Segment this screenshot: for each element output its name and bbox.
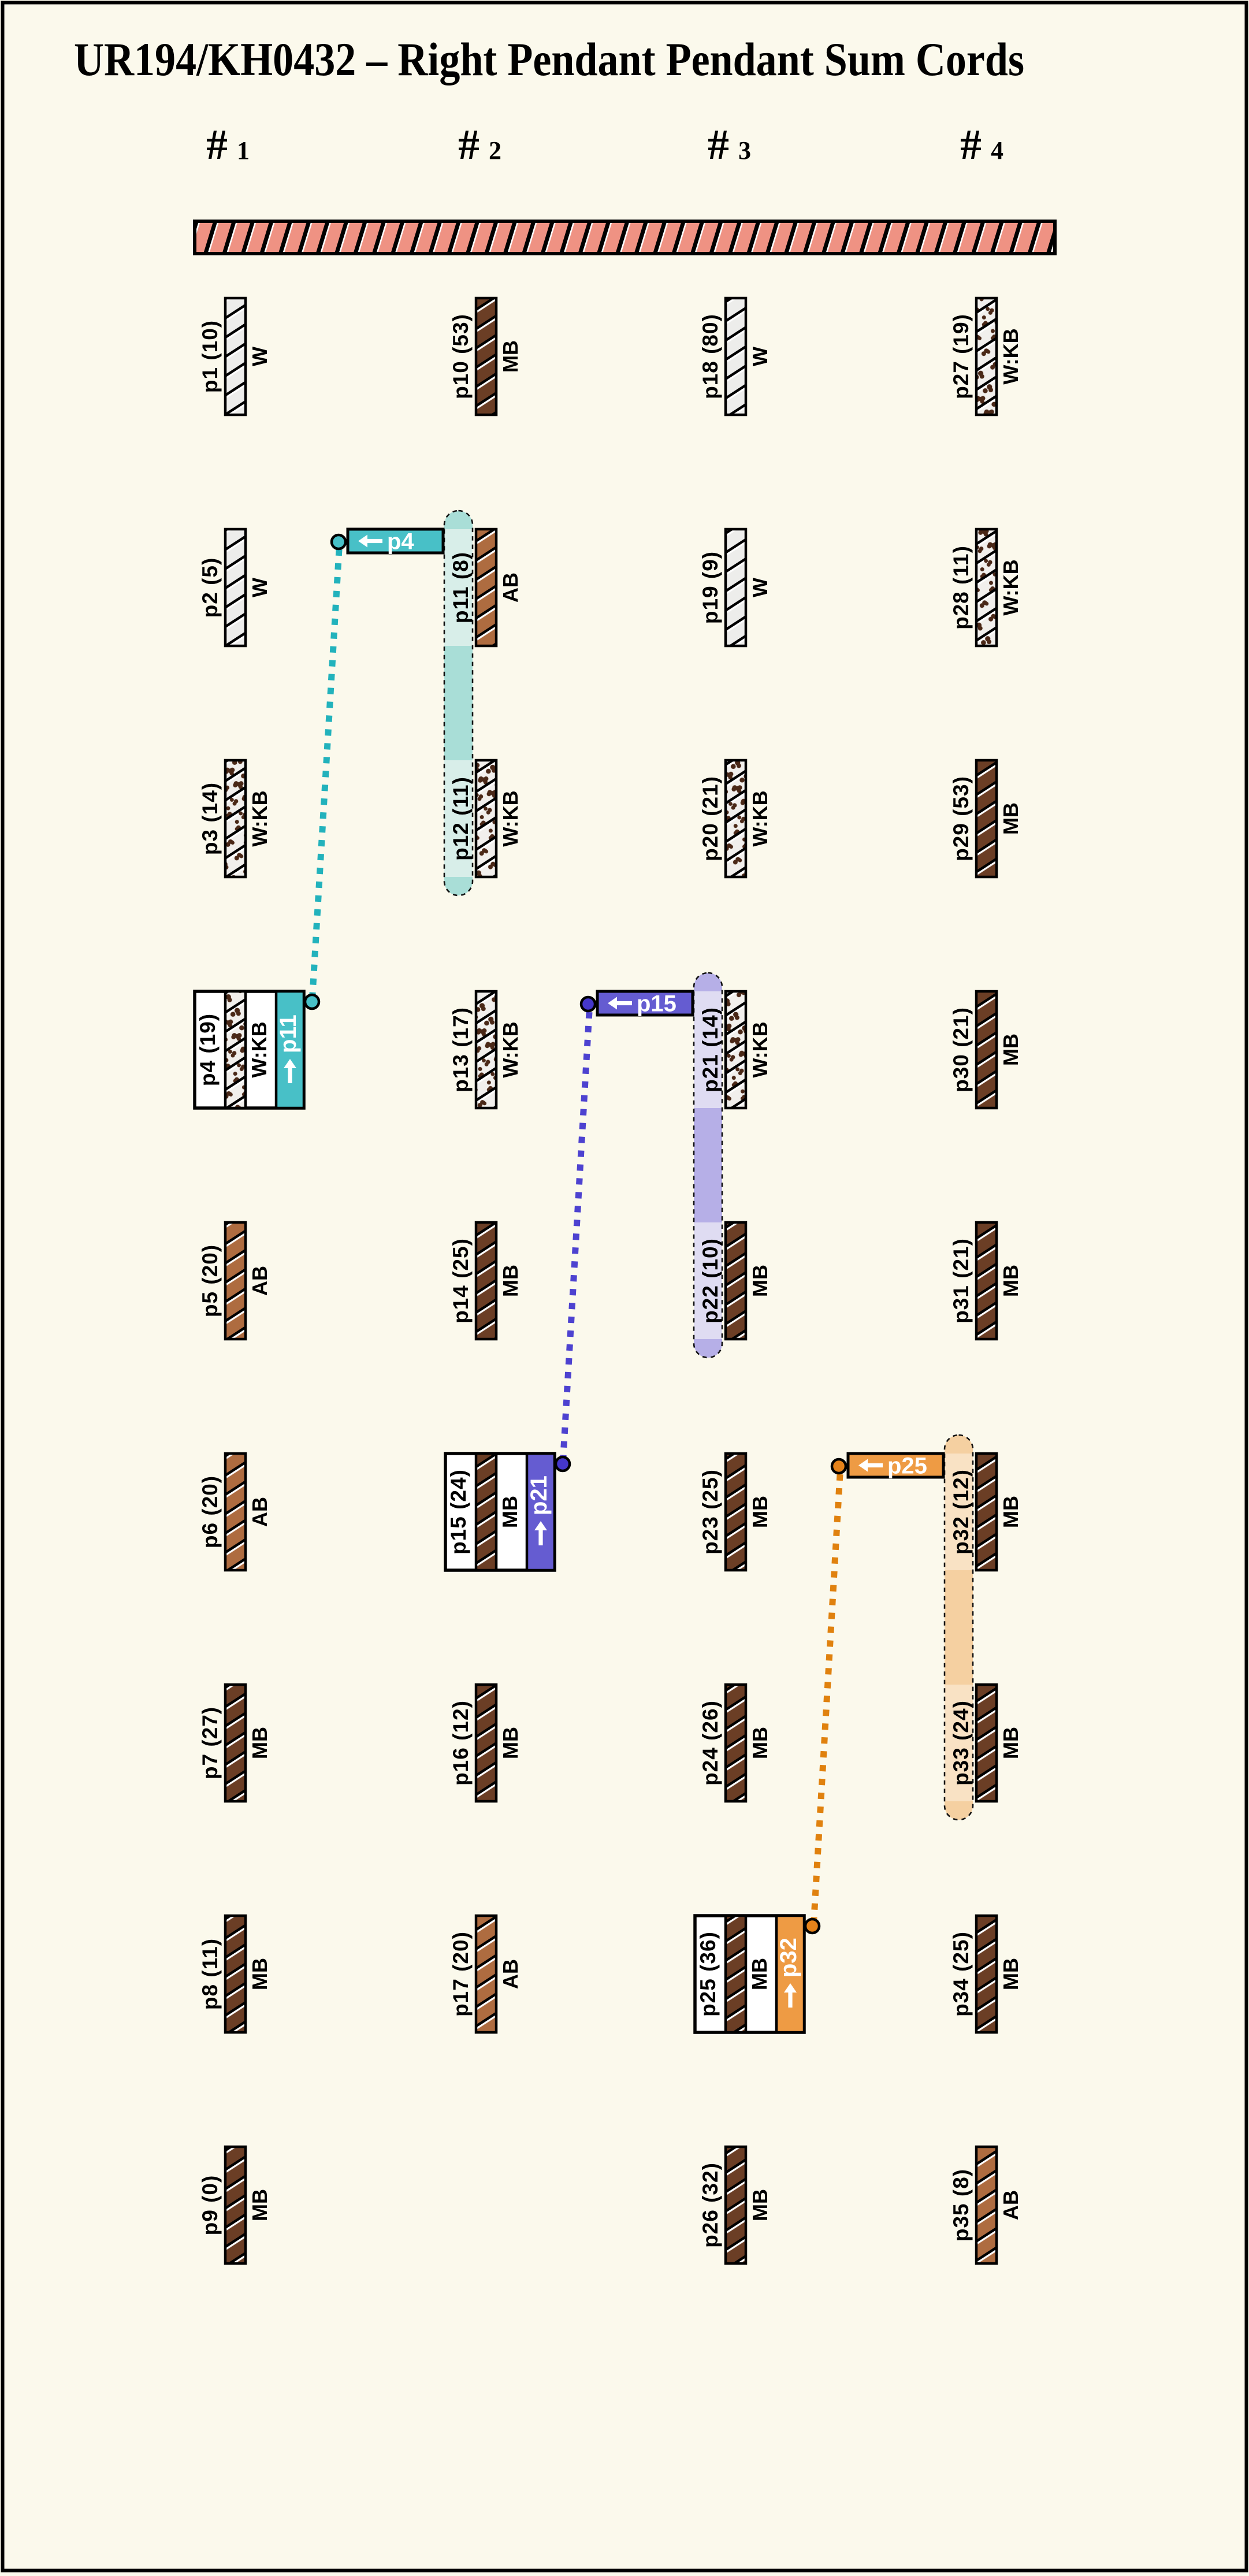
svg-text:p5 (20): p5 (20) [198, 1244, 222, 1317]
svg-text:MB: MB [748, 2189, 772, 2221]
svg-text:UR194/KH0432 – Right Pendant P: UR194/KH0432 – Right Pendant Pendant Sum… [74, 33, 1024, 86]
svg-text:AB: AB [248, 1266, 272, 1296]
svg-text:p10 (53): p10 (53) [449, 314, 473, 399]
svg-text:p11 (8): p11 (8) [449, 552, 473, 623]
svg-text:MB: MB [748, 1265, 772, 1297]
svg-text:p18 (80): p18 (80) [698, 314, 722, 399]
svg-text:MB: MB [248, 1727, 272, 1759]
svg-text:MB: MB [499, 1727, 522, 1759]
svg-text:W:KB: W:KB [499, 1021, 522, 1077]
svg-text:W:KB: W:KB [999, 559, 1023, 615]
svg-text:p1 (10): p1 (10) [198, 320, 222, 393]
svg-text:W:KB: W:KB [748, 790, 772, 846]
svg-text:p3 (14): p3 (14) [198, 782, 222, 855]
svg-text:p25 (36): p25 (36) [696, 1931, 720, 2017]
svg-text:p6 (20): p6 (20) [198, 1475, 222, 1548]
svg-text:p2 (5): p2 (5) [198, 557, 222, 618]
svg-text:p35 (8): p35 (8) [949, 2169, 973, 2242]
svg-text:p30 (21): p30 (21) [949, 1007, 973, 1092]
svg-text:p15: p15 [637, 991, 676, 1017]
svg-text:p9 (0): p9 (0) [198, 2175, 222, 2236]
svg-text:p26 (32): p26 (32) [698, 2162, 722, 2248]
svg-text:W: W [748, 578, 772, 597]
svg-text:p7 (27): p7 (27) [198, 1707, 222, 1779]
svg-text:AB: AB [499, 1959, 522, 1989]
svg-text:p25: p25 [887, 1454, 927, 1479]
svg-text:p22 (10): p22 (10) [698, 1238, 722, 1324]
svg-text:p20 (21): p20 (21) [698, 776, 722, 861]
svg-text:AB: AB [999, 2190, 1023, 2220]
svg-text:W:KB: W:KB [248, 790, 272, 846]
svg-text:p19 (9): p19 (9) [698, 551, 722, 624]
svg-text:W:KB: W:KB [748, 1021, 772, 1077]
svg-text:MB: MB [999, 1496, 1023, 1528]
svg-text:p33 (24): p33 (24) [949, 1700, 973, 1786]
svg-text:MB: MB [748, 1727, 772, 1759]
svg-text:W: W [248, 578, 272, 597]
svg-text:MB: MB [748, 1496, 772, 1528]
svg-text:MB: MB [499, 1265, 522, 1297]
svg-text:MB: MB [999, 1958, 1023, 1990]
svg-text:p32: p32 [776, 1938, 801, 1977]
svg-text:p16 (12): p16 (12) [449, 1700, 473, 1786]
svg-text:AB: AB [499, 573, 522, 603]
svg-text:p27 (19): p27 (19) [949, 314, 973, 399]
svg-text:p31 (21): p31 (21) [949, 1238, 973, 1324]
svg-text:p28 (11): p28 (11) [949, 545, 973, 630]
svg-text:p23 (25): p23 (25) [698, 1469, 722, 1555]
svg-text:p21 (14): p21 (14) [698, 1007, 722, 1092]
svg-text:AB: AB [248, 1497, 272, 1527]
svg-text:W:KB: W:KB [999, 328, 1023, 384]
svg-text:MB: MB [248, 1958, 272, 1990]
svg-text:W:KB: W:KB [247, 1021, 271, 1077]
svg-text:p21: p21 [526, 1475, 552, 1515]
svg-text:MB: MB [999, 1265, 1023, 1297]
svg-text:MB: MB [999, 1727, 1023, 1759]
svg-text:p14 (25): p14 (25) [449, 1238, 473, 1324]
svg-text:p34 (25): p34 (25) [949, 1931, 973, 2017]
svg-text:MB: MB [748, 1958, 771, 1990]
svg-text:MB: MB [248, 2189, 272, 2221]
svg-text:p4: p4 [387, 529, 414, 555]
svg-text:MB: MB [498, 1496, 522, 1528]
svg-text:p32 (12): p32 (12) [949, 1469, 973, 1555]
svg-text:W: W [748, 347, 772, 366]
svg-text:p11: p11 [276, 1014, 301, 1053]
svg-text:p4 (19): p4 (19) [196, 1013, 220, 1086]
svg-text:p24 (26): p24 (26) [698, 1700, 722, 1786]
svg-text:MB: MB [999, 802, 1023, 835]
svg-text:W:KB: W:KB [499, 790, 522, 846]
svg-text:p8 (11): p8 (11) [198, 1938, 222, 2010]
svg-text:p13 (17): p13 (17) [449, 1007, 473, 1092]
svg-text:p17 (20): p17 (20) [449, 1931, 473, 2017]
svg-text:W: W [248, 347, 272, 366]
svg-text:p12 (11): p12 (11) [449, 776, 473, 861]
svg-text:p29 (53): p29 (53) [949, 776, 973, 861]
svg-text:p15 (24): p15 (24) [447, 1469, 470, 1555]
svg-text:MB: MB [499, 340, 522, 373]
svg-text:MB: MB [999, 1034, 1023, 1066]
